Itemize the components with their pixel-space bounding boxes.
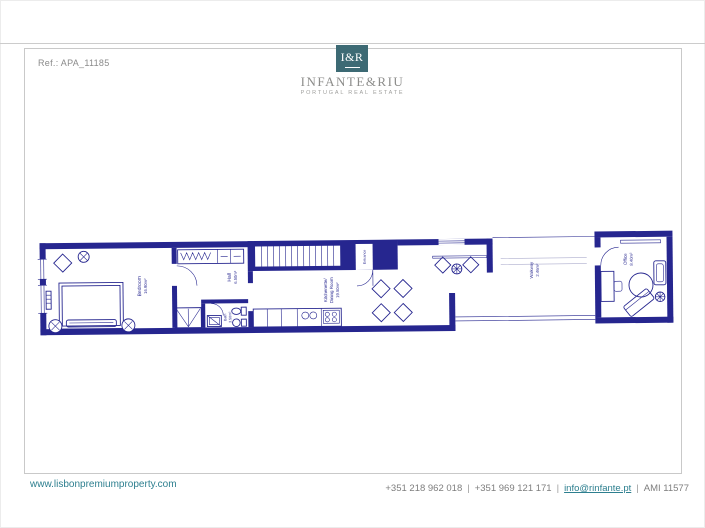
room-label-walkway: Walkway — [529, 261, 534, 279]
dining-table-icon — [372, 279, 412, 321]
shelf-icon — [621, 240, 661, 243]
shower-icon — [207, 315, 221, 326]
document-page: Ref.: APA_11185 I&R INFANTE&RIU PORTUGAL… — [0, 0, 705, 528]
room-area-office: 8.40m² — [629, 252, 634, 266]
chair-diamond-icon — [54, 254, 72, 272]
logo-name: INFANTE&RIU — [0, 74, 705, 90]
phone-mobile: +351 969 121 171 — [475, 483, 552, 494]
closet-icon — [175, 308, 201, 328]
room-label-bath: Bath — [223, 314, 227, 321]
room-area-walkway: 2.46m² — [535, 263, 540, 277]
room-area-bedroom: 16.90m² — [143, 278, 148, 294]
round-table-icon — [629, 273, 653, 297]
email-link[interactable]: info@rinfante.pt — [564, 483, 631, 494]
header-divider — [0, 43, 705, 44]
separator: | — [467, 483, 469, 494]
bed-icon — [59, 282, 123, 329]
bidet-icon — [233, 319, 247, 327]
room-area-hall: 6.50m² — [233, 270, 238, 284]
separator: | — [636, 483, 638, 494]
lamp-icon — [78, 251, 89, 262]
room-label-entrance: Entrance — [363, 250, 367, 264]
toilet-icon — [232, 307, 247, 315]
kitchen-counter-icon — [253, 308, 341, 327]
logo-monogram-box: I&R — [336, 45, 368, 72]
plant-icon — [655, 292, 665, 302]
office-furniture — [601, 240, 667, 318]
room-area-bath: 3.50m² — [228, 311, 232, 323]
room-label-kitchenette-2: Dining Room — [329, 277, 334, 303]
sofa-icon — [623, 288, 655, 317]
armchair-icon — [654, 261, 666, 285]
logo-monogram: I&R — [341, 50, 364, 65]
license-number: AMI 11577 — [644, 483, 689, 494]
bedroom-door-arc — [177, 266, 197, 286]
room-label-office: Office — [623, 253, 628, 265]
room-area-kitchenette: 19.50m² — [335, 282, 340, 298]
contact-info: +351 218 962 018|+351 969 121 171|info@r… — [385, 483, 689, 494]
phone-primary: +351 218 962 018 — [385, 483, 462, 494]
room-label-kitchenette-1: Kitchenette/ — [323, 278, 328, 303]
entrance-door-arc — [357, 270, 373, 286]
floorplan-svg: Bedroom 16.90m² Hall 6.50m² Bath 3.50m² … — [34, 223, 675, 352]
reference-number: Ref.: APA_11185 — [38, 58, 110, 68]
walkway-boundary — [454, 236, 595, 320]
desk-chair-icon — [614, 281, 622, 291]
separator: | — [557, 483, 559, 494]
desk-icon — [601, 271, 614, 301]
stairs-icon — [255, 245, 341, 267]
logo-underline — [345, 67, 360, 68]
bath-door-arc — [211, 303, 223, 315]
website-link[interactable]: www.lisbonpremiumproperty.com — [30, 479, 177, 490]
wardrobe-icon — [178, 249, 244, 264]
office-door-arc — [601, 247, 619, 265]
sitting-area-icon — [433, 256, 487, 275]
logo-tagline: PORTUGAL REAL ESTATE — [0, 90, 705, 96]
